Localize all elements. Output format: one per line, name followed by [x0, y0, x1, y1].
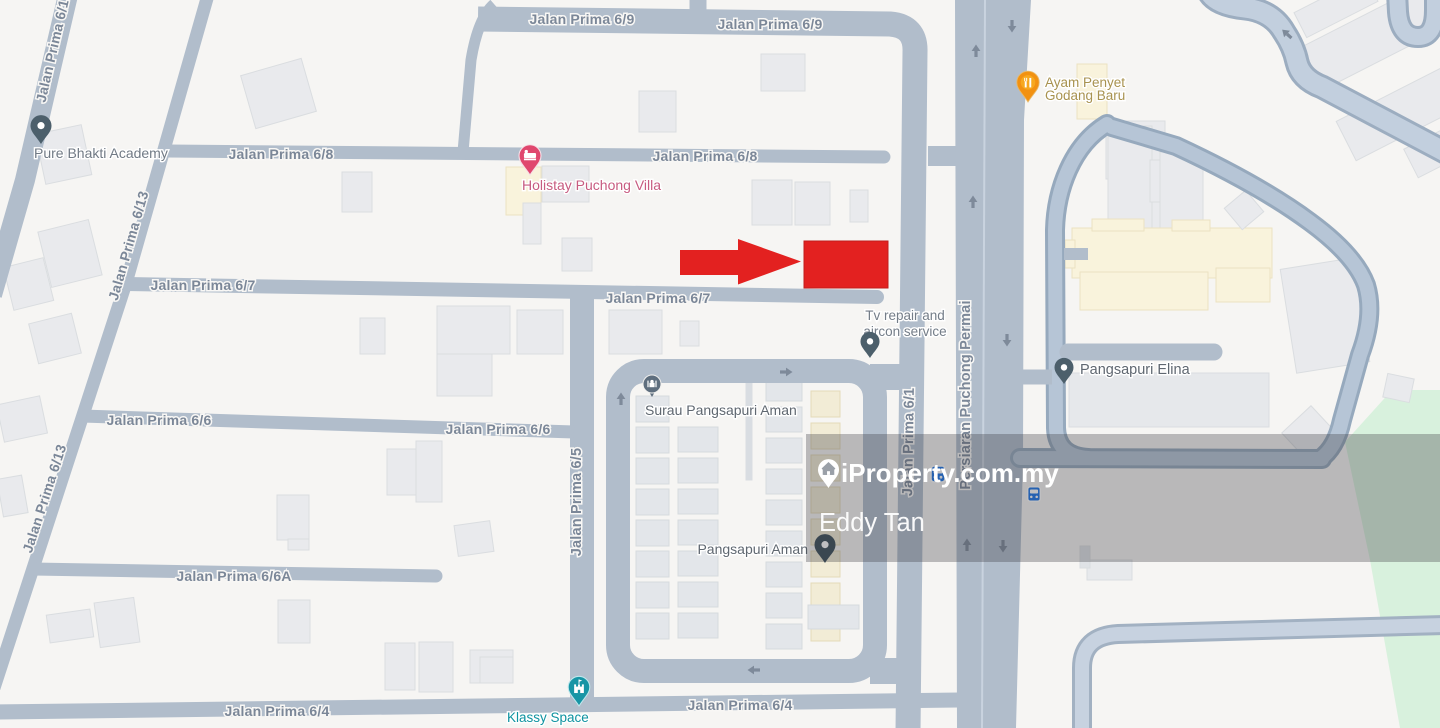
- svg-text:Jalan Prima 6/6A: Jalan Prima 6/6A: [176, 568, 291, 584]
- svg-text:Holistay Puchong Villa: Holistay Puchong Villa: [522, 177, 661, 193]
- svg-text:Jalan Prima 6/8: Jalan Prima 6/8: [229, 146, 334, 162]
- svg-text:Pangsapuri Elina: Pangsapuri Elina: [1080, 362, 1191, 378]
- svg-text:Jalan Prima 6/9: Jalan Prima 6/9: [530, 11, 635, 27]
- svg-text:Jalan Prima 6/4: Jalan Prima 6/4: [688, 697, 793, 713]
- svg-text:Jalan Prima 6/9: Jalan Prima 6/9: [718, 16, 823, 32]
- svg-text:Jalan Prima 6/5: Jalan Prima 6/5: [569, 448, 585, 557]
- svg-text:Pangsapuri Aman: Pangsapuri Aman: [697, 541, 808, 557]
- svg-text:Godang Baru: Godang Baru: [1045, 88, 1125, 103]
- svg-text:Surau Pangsapuri Aman: Surau Pangsapuri Aman: [645, 402, 797, 418]
- svg-text:Eddy Tan: Eddy Tan: [819, 509, 925, 537]
- svg-text:Jalan Prima 6/7: Jalan Prima 6/7: [606, 290, 711, 306]
- svg-text:Jalan Prima 6/6: Jalan Prima 6/6: [107, 412, 212, 428]
- svg-text:Klassy Space: Klassy Space: [507, 710, 589, 725]
- svg-text:Pure Bhakti Academy: Pure Bhakti Academy: [34, 145, 168, 161]
- svg-text:iProperty.com.my: iProperty.com.my: [841, 458, 1059, 488]
- svg-text:Tv repair and: Tv repair and: [865, 308, 945, 323]
- svg-text:Jalan Prima 6/8: Jalan Prima 6/8: [653, 148, 758, 164]
- svg-text:Jalan Prima 6/6: Jalan Prima 6/6: [446, 421, 551, 437]
- svg-text:Jalan Prima 6/7: Jalan Prima 6/7: [151, 277, 256, 293]
- svg-text:Jalan Prima 6/4: Jalan Prima 6/4: [225, 703, 330, 719]
